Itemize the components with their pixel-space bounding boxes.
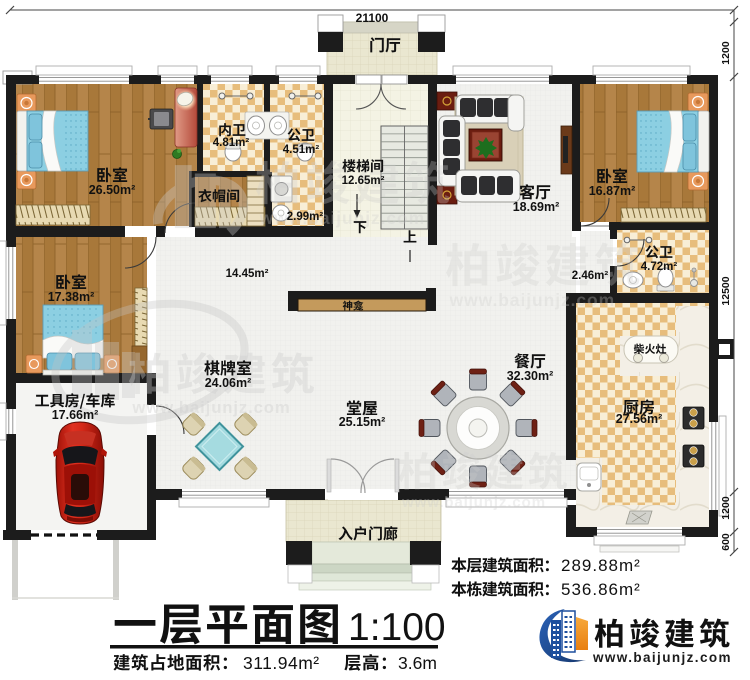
svg-text:12.65m²: 12.65m² <box>342 175 385 187</box>
svg-text:16.87m²: 16.87m² <box>589 184 636 198</box>
svg-text:3.6m: 3.6m <box>398 653 437 673</box>
svg-text:289.88m²: 289.88m² <box>561 556 641 575</box>
svg-text:24.06m²: 24.06m² <box>205 376 252 390</box>
svg-text:1200: 1200 <box>720 41 732 65</box>
svg-text:4.72m²: 4.72m² <box>641 261 678 273</box>
svg-text:2.99m²: 2.99m² <box>287 211 324 223</box>
svg-text:25.15m²: 25.15m² <box>339 415 386 429</box>
svg-text:www.baijunjz.com: www.baijunjz.com <box>259 208 425 228</box>
svg-text:536.86m²: 536.86m² <box>561 580 641 599</box>
svg-text:18.69m²: 18.69m² <box>513 200 560 214</box>
svg-text:27.56m²: 27.56m² <box>616 412 663 426</box>
svg-text:26.50m²: 26.50m² <box>89 183 136 197</box>
svg-text:17.38m²: 17.38m² <box>48 290 95 304</box>
svg-text:17.66m²: 17.66m² <box>52 408 99 422</box>
svg-text:www.baijunjz.com: www.baijunjz.com <box>592 650 732 665</box>
svg-text:32.30m²: 32.30m² <box>507 369 554 383</box>
svg-text:www.baijunjz.com: www.baijunjz.com <box>449 290 615 310</box>
svg-text:4.51m²: 4.51m² <box>283 144 320 156</box>
svg-text:311.94m²: 311.94m² <box>243 653 320 673</box>
svg-text:600: 600 <box>720 533 732 551</box>
svg-text:12500: 12500 <box>720 276 732 305</box>
svg-text:4.81m²: 4.81m² <box>213 137 250 149</box>
svg-text:2.46m²: 2.46m² <box>572 270 609 282</box>
svg-text:www.baijunjz.com: www.baijunjz.com <box>401 494 546 511</box>
svg-text:www.baijunjz.com: www.baijunjz.com <box>131 398 290 417</box>
svg-text:14.45m²: 14.45m² <box>226 268 269 280</box>
svg-text:1200: 1200 <box>720 496 732 520</box>
svg-text:1:100: 1:100 <box>348 606 446 649</box>
svg-text:21100: 21100 <box>356 11 389 25</box>
